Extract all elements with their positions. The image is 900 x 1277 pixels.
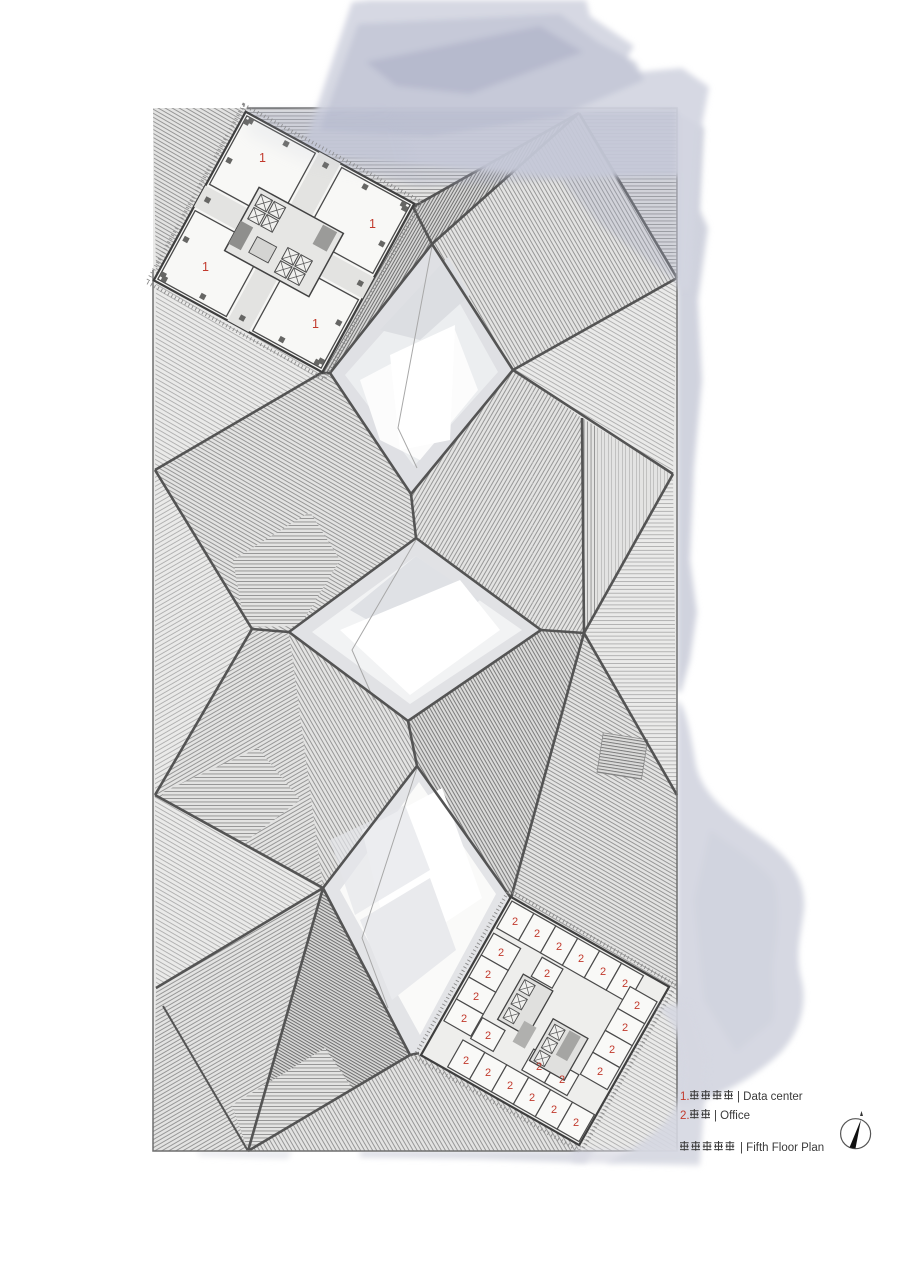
svg-text:1: 1 [369, 217, 376, 231]
svg-text:2: 2 [485, 1030, 491, 1042]
svg-text:2: 2 [600, 966, 606, 978]
svg-text:2: 2 [512, 916, 518, 928]
svg-text:1: 1 [259, 151, 266, 165]
svg-text:| Data center: | Data center [737, 1091, 803, 1103]
svg-text:2: 2 [573, 1117, 579, 1129]
svg-text:2: 2 [556, 941, 562, 953]
svg-text:| Fifth Floor Plan: | Fifth Floor Plan [740, 1142, 824, 1154]
svg-text:2: 2 [551, 1104, 557, 1116]
svg-text:2: 2 [597, 1066, 603, 1078]
svg-text:2: 2 [463, 1055, 469, 1067]
svg-text:2.: 2. [680, 1110, 690, 1122]
svg-text:2: 2 [622, 978, 628, 990]
svg-text:2: 2 [485, 1067, 491, 1079]
svg-text:2: 2 [534, 928, 540, 940]
svg-text:2: 2 [461, 1013, 467, 1025]
svg-text:2: 2 [622, 1022, 628, 1034]
svg-text:2: 2 [536, 1061, 542, 1073]
svg-text:2: 2 [578, 953, 584, 965]
svg-text:2: 2 [473, 991, 479, 1003]
svg-text:2: 2 [559, 1074, 565, 1086]
svg-text:2: 2 [507, 1080, 513, 1092]
svg-text:2: 2 [609, 1044, 615, 1056]
svg-text:2: 2 [498, 947, 504, 959]
svg-text:| Office: | Office [714, 1110, 750, 1122]
svg-text:2: 2 [544, 968, 550, 980]
svg-text:2: 2 [485, 969, 491, 981]
svg-text:2: 2 [634, 1000, 640, 1012]
svg-text:1: 1 [312, 317, 319, 331]
svg-text:1: 1 [202, 260, 209, 274]
svg-text:1.: 1. [680, 1091, 690, 1103]
svg-text:2: 2 [529, 1092, 535, 1104]
